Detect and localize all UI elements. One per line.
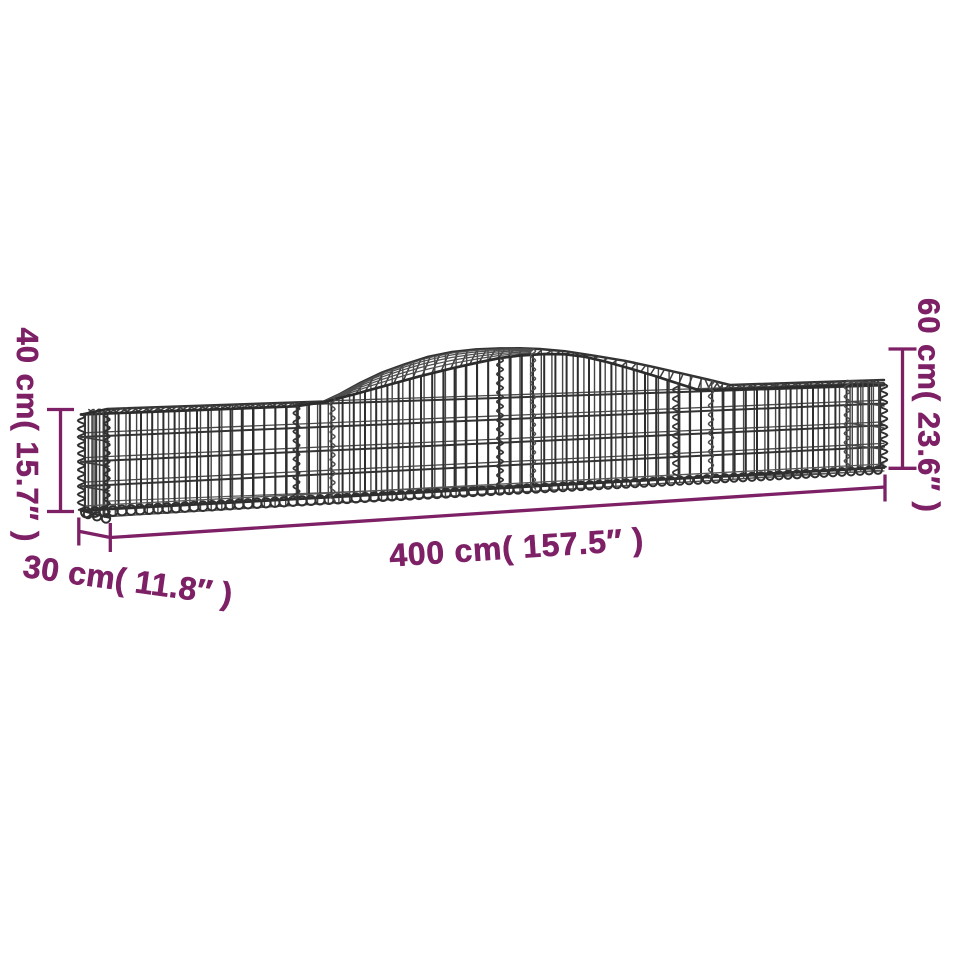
svg-text:400 cm( 157.5″ ): 400 cm( 157.5″ ) [388, 521, 645, 574]
svg-text:30 cm( 11.8″ ): 30 cm( 11.8″ ) [21, 548, 235, 612]
svg-text:40 cm( 15.7″ ): 40 cm( 15.7″ ) [10, 328, 45, 543]
svg-text:60 cm( 23.6″ ): 60 cm( 23.6″ ) [912, 298, 947, 513]
